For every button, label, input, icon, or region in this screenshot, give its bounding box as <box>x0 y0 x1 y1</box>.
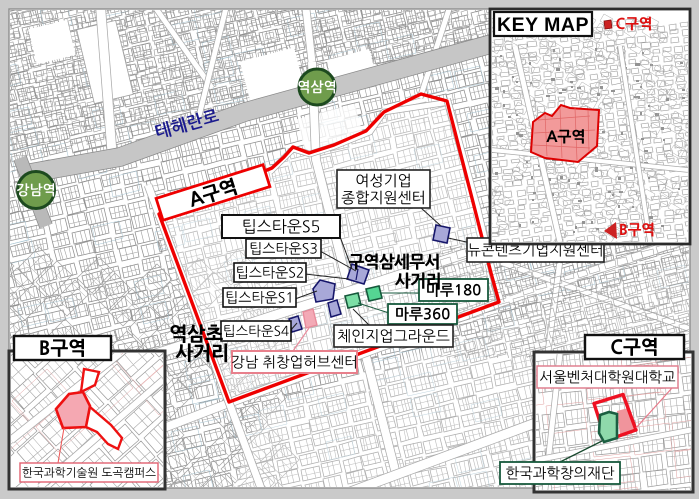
svg-text:KEY MAP: KEY MAP <box>497 14 589 36</box>
